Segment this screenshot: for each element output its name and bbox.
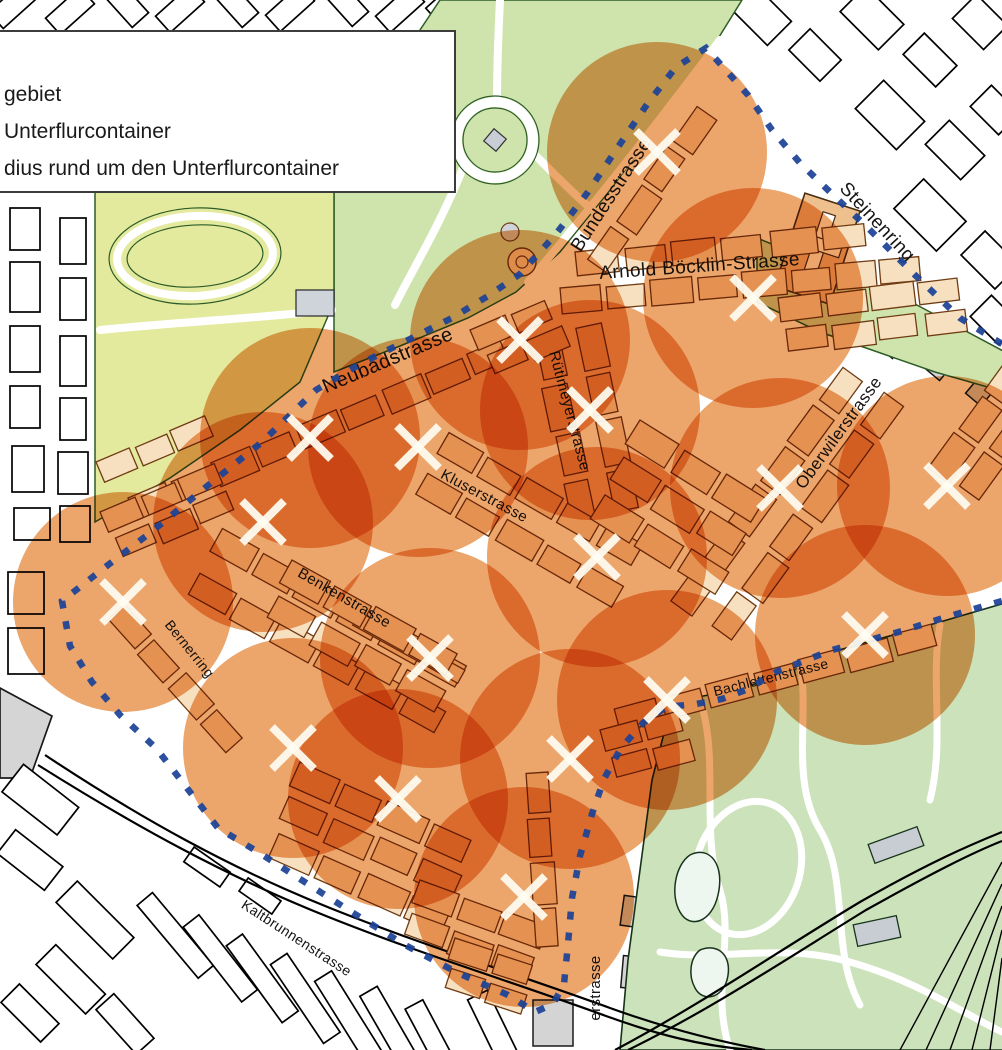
zoo-pond-2 [691,948,729,997]
map-page: BundesstrasseSteinenringArnold Böcklin-S… [0,0,1002,1050]
field-building [296,290,334,316]
legend-item-pilot-area: gebiet [4,76,454,113]
legend-item-radius: dius rund um den Unterflurcontainer [4,150,454,187]
legend: gebiet Unterflurcontainer dius rund um d… [0,30,456,193]
legend-item-container: Unterflurcontainer [4,113,454,150]
